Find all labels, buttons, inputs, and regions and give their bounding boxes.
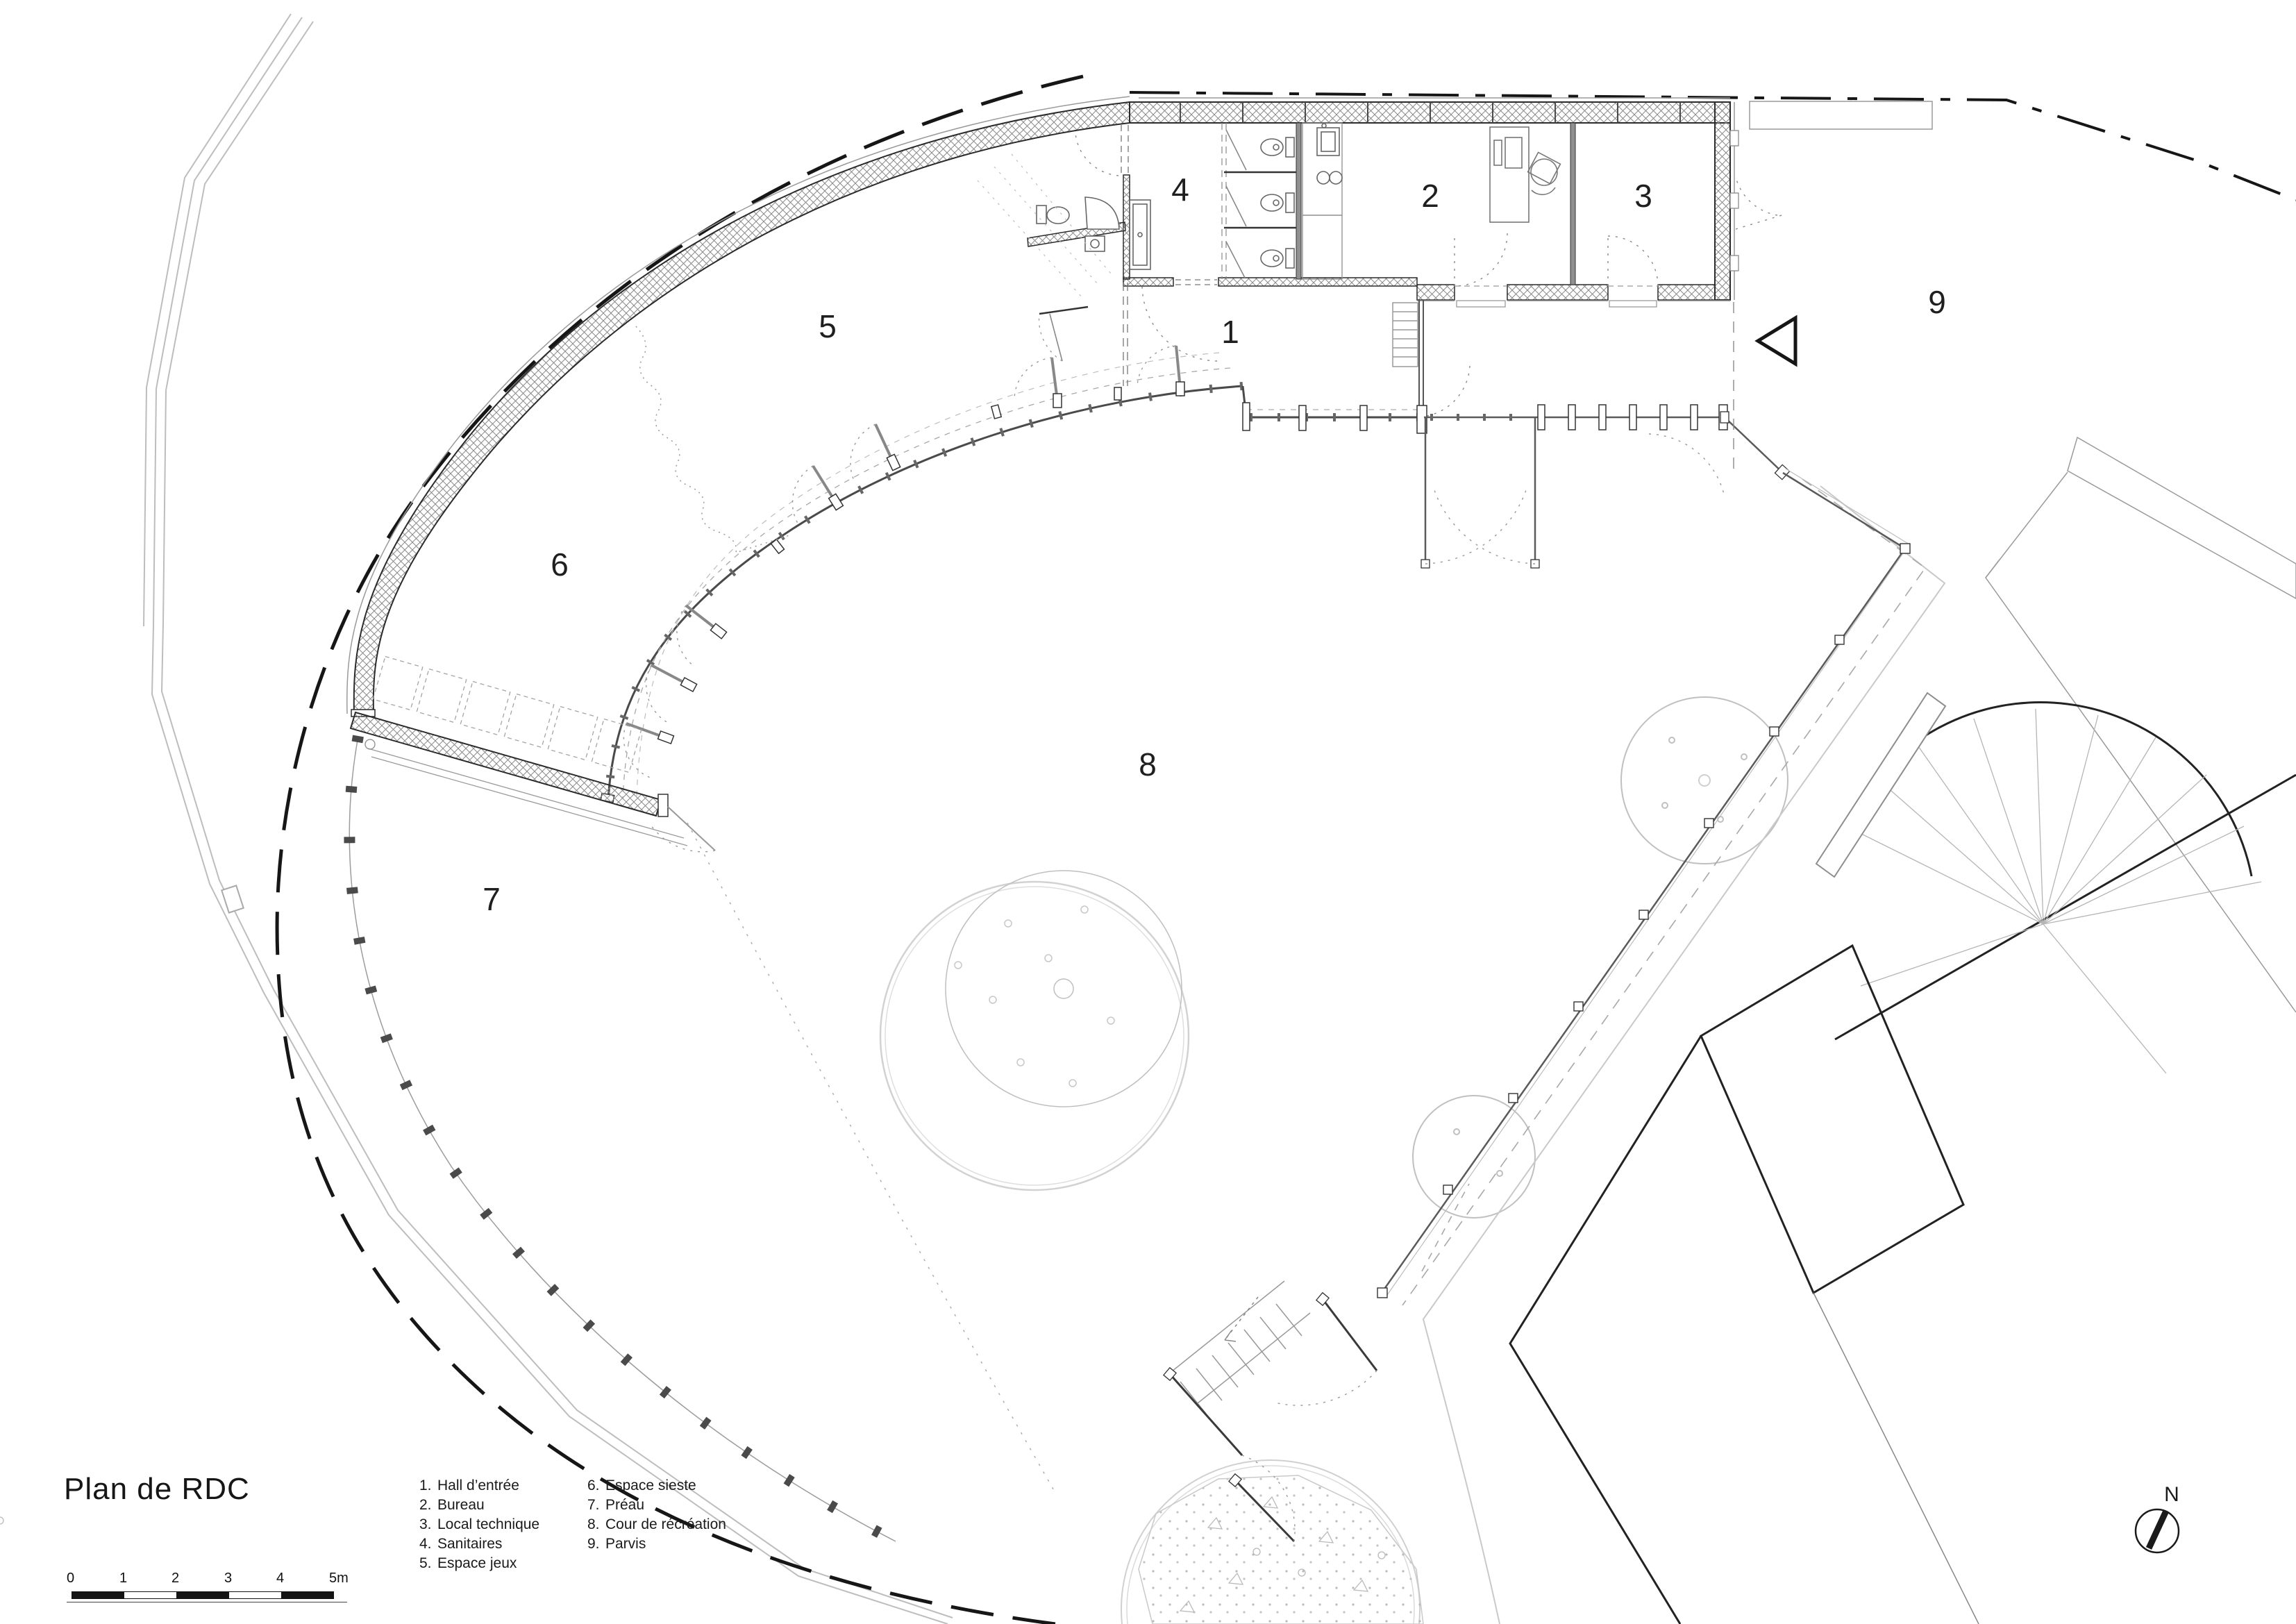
bench bbox=[1816, 693, 1945, 877]
preau-posts bbox=[349, 736, 896, 1541]
boundary-canopy-west bbox=[277, 76, 1083, 1624]
play-circles bbox=[880, 871, 1189, 1190]
neighbour-south bbox=[1510, 946, 1979, 1624]
parvis-fence bbox=[1421, 302, 1790, 568]
kitchenette bbox=[1302, 123, 1342, 279]
room-label-3: 3 bbox=[1634, 178, 1652, 214]
legend-item: 2.Bureau bbox=[419, 1496, 539, 1515]
entrance-triangle-icon bbox=[1758, 318, 1795, 364]
room-label-5: 5 bbox=[819, 308, 837, 344]
legend-column-1: 1.Hall d’entrée 2.Bureau 3.Local techniq… bbox=[419, 1476, 539, 1573]
floor-plan-drawing: 1 2 3 4 5 6 7 8 9 N bbox=[0, 0, 2296, 1624]
room-label-4: 4 bbox=[1171, 171, 1189, 208]
path-edges bbox=[1402, 479, 1945, 1624]
site-context bbox=[0, 14, 2296, 1624]
room-label-6: 6 bbox=[551, 546, 569, 583]
room-label-2: 2 bbox=[1421, 178, 1439, 214]
office-chair bbox=[1528, 152, 1561, 194]
preau-structure bbox=[349, 736, 1055, 1541]
curved-glazing bbox=[608, 353, 1243, 800]
tree bbox=[1413, 1096, 1535, 1218]
external-stair bbox=[1172, 1281, 1310, 1414]
curved-wall bbox=[354, 102, 1130, 714]
legend-item: 6.Espace sieste bbox=[587, 1476, 726, 1496]
legend-item: 8.Cour de récréation bbox=[587, 1515, 726, 1534]
hall-stair bbox=[1393, 303, 1418, 367]
north-label: N bbox=[2164, 1483, 2179, 1506]
scale-tick-labels: 0 1 2 3 4 5m bbox=[67, 1571, 358, 1589]
room-label-9: 9 bbox=[1928, 284, 1946, 320]
building bbox=[347, 97, 1910, 1541]
preau-court-limit bbox=[687, 823, 1055, 1493]
partitions bbox=[1121, 123, 1575, 285]
east-wall bbox=[1715, 102, 1730, 300]
room-label-7: 7 bbox=[483, 881, 501, 917]
change-table bbox=[1130, 200, 1150, 269]
diagonal-fence bbox=[1377, 469, 1910, 1298]
room-label-8: 8 bbox=[1139, 746, 1157, 782]
hall-east-wall bbox=[1246, 300, 1470, 417]
page-title: Plan de RDC bbox=[64, 1472, 250, 1507]
north-arrow: N bbox=[2136, 1483, 2179, 1552]
road-kerb bbox=[144, 14, 953, 1624]
site-boundary bbox=[277, 76, 2296, 1624]
legend-item: 9.Parvis bbox=[587, 1534, 726, 1554]
room-label-1: 1 bbox=[1221, 314, 1239, 350]
scale-bar: 0 1 2 3 4 5m bbox=[67, 1571, 358, 1612]
cloakroom-curtain bbox=[636, 326, 791, 553]
room6-wall bbox=[351, 657, 715, 852]
toilets bbox=[1226, 130, 1294, 278]
door-swings bbox=[1075, 133, 1786, 361]
legend-item: 5.Espace jeux bbox=[419, 1554, 539, 1573]
pivot-doors bbox=[601, 346, 1184, 802]
legend-item: 1.Hall d’entrée bbox=[419, 1476, 539, 1496]
south-wall-bar bbox=[1123, 278, 1730, 307]
legend-item: 3.Local technique bbox=[419, 1515, 539, 1534]
accessible-wc bbox=[1028, 197, 1125, 361]
legend-item: 4.Sanitaires bbox=[419, 1534, 539, 1554]
scale-bar-segments bbox=[72, 1591, 334, 1599]
curved-wall-cladding bbox=[347, 97, 1130, 714]
legend-column-2: 6.Espace sieste 7.Préau 8.Cour de récréa… bbox=[587, 1476, 726, 1554]
legend-item: 7.Préau bbox=[587, 1496, 726, 1515]
existing-wall bbox=[1750, 101, 1932, 129]
desk bbox=[1490, 127, 1560, 222]
